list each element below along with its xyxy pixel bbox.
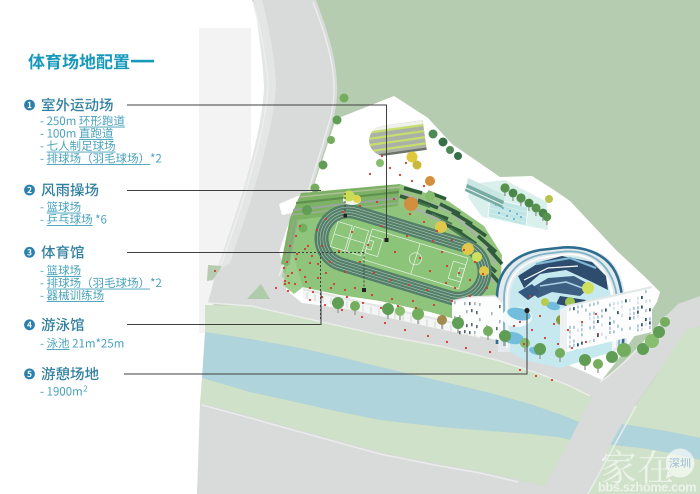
svg-text:bbs.szhome.com: bbs.szhome.com (598, 480, 696, 494)
